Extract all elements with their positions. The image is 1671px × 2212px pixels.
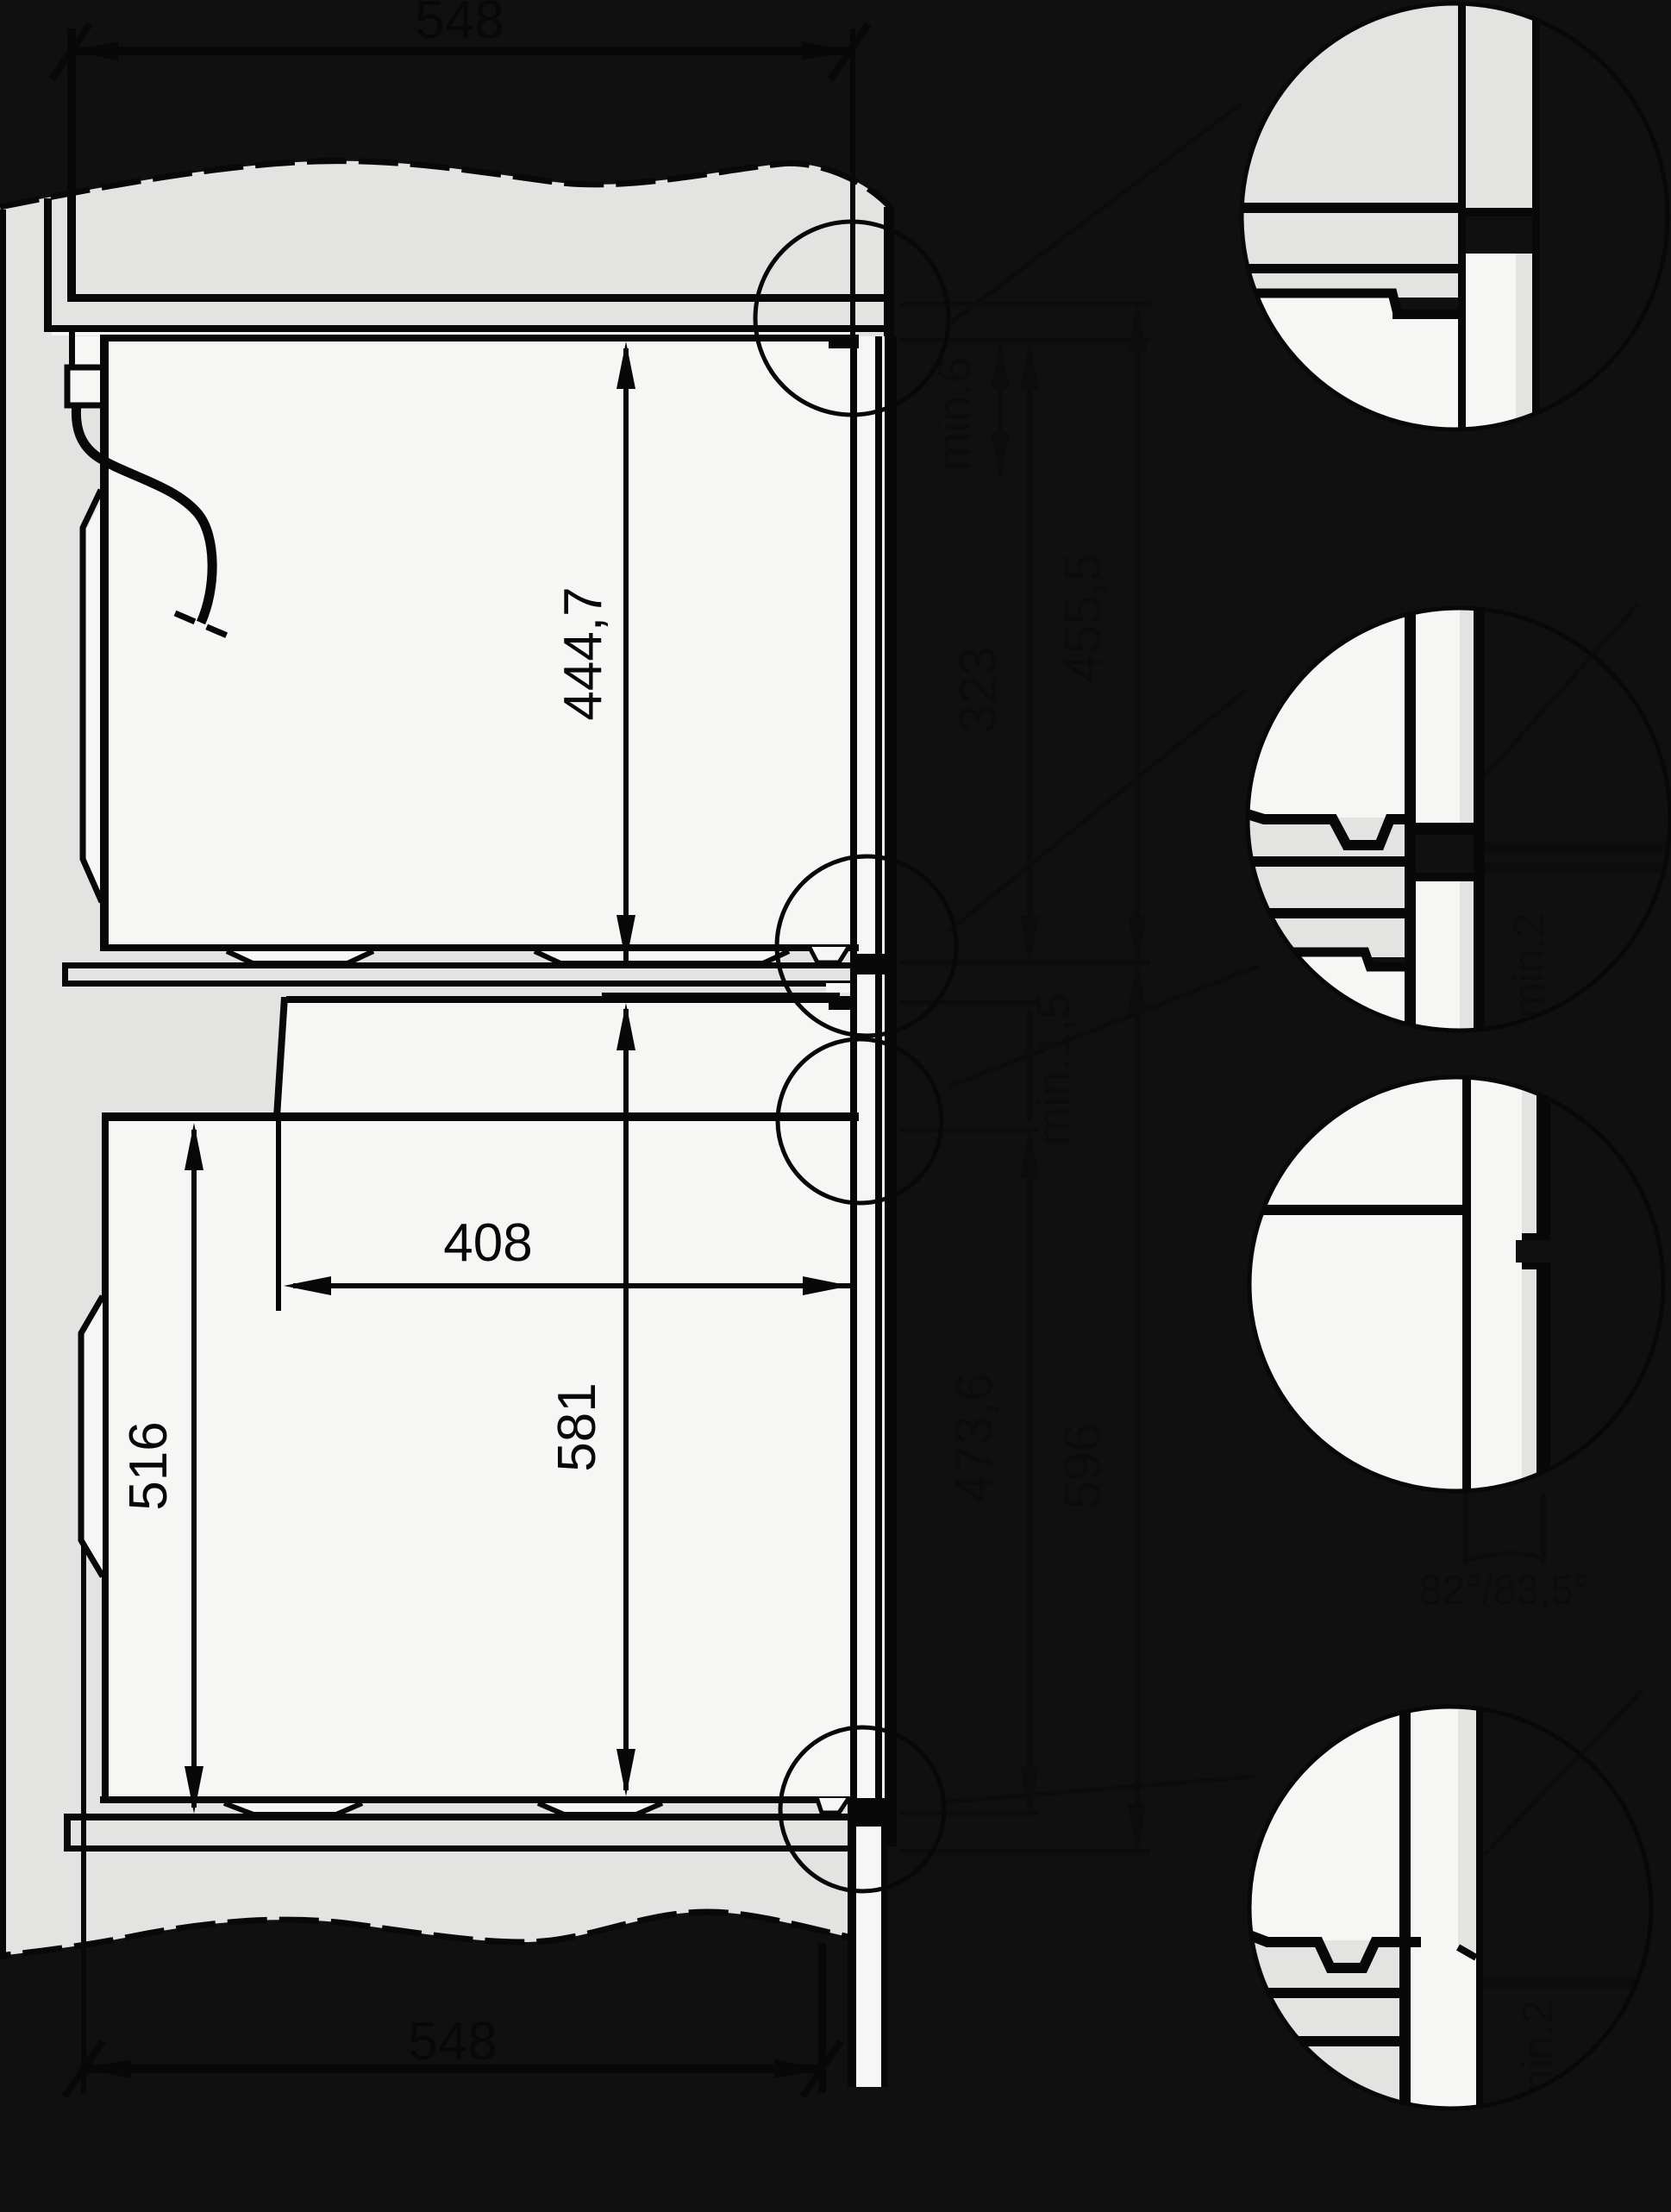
svg-text:408: 408 xyxy=(443,1213,532,1273)
svg-text:581: 581 xyxy=(548,1382,607,1471)
svg-text:473,6: 473,6 xyxy=(945,1373,1003,1502)
svg-text:548: 548 xyxy=(415,0,504,50)
svg-text:82°/83,5°: 82°/83,5° xyxy=(1419,1568,1591,1614)
svg-text:min.2: min.2 xyxy=(1505,913,1553,1018)
svg-text:596: 596 xyxy=(1054,1423,1111,1509)
svg-text:548: 548 xyxy=(408,2012,497,2071)
svg-text:516: 516 xyxy=(119,1421,178,1510)
svg-text:455,5: 455,5 xyxy=(1054,553,1111,682)
svg-text:min.1,5: min.1,5 xyxy=(1028,993,1080,1145)
svg-text:323: 323 xyxy=(949,647,1007,733)
svg-text:444,7: 444,7 xyxy=(554,586,613,720)
svg-text:min.6: min.6 xyxy=(929,357,980,471)
